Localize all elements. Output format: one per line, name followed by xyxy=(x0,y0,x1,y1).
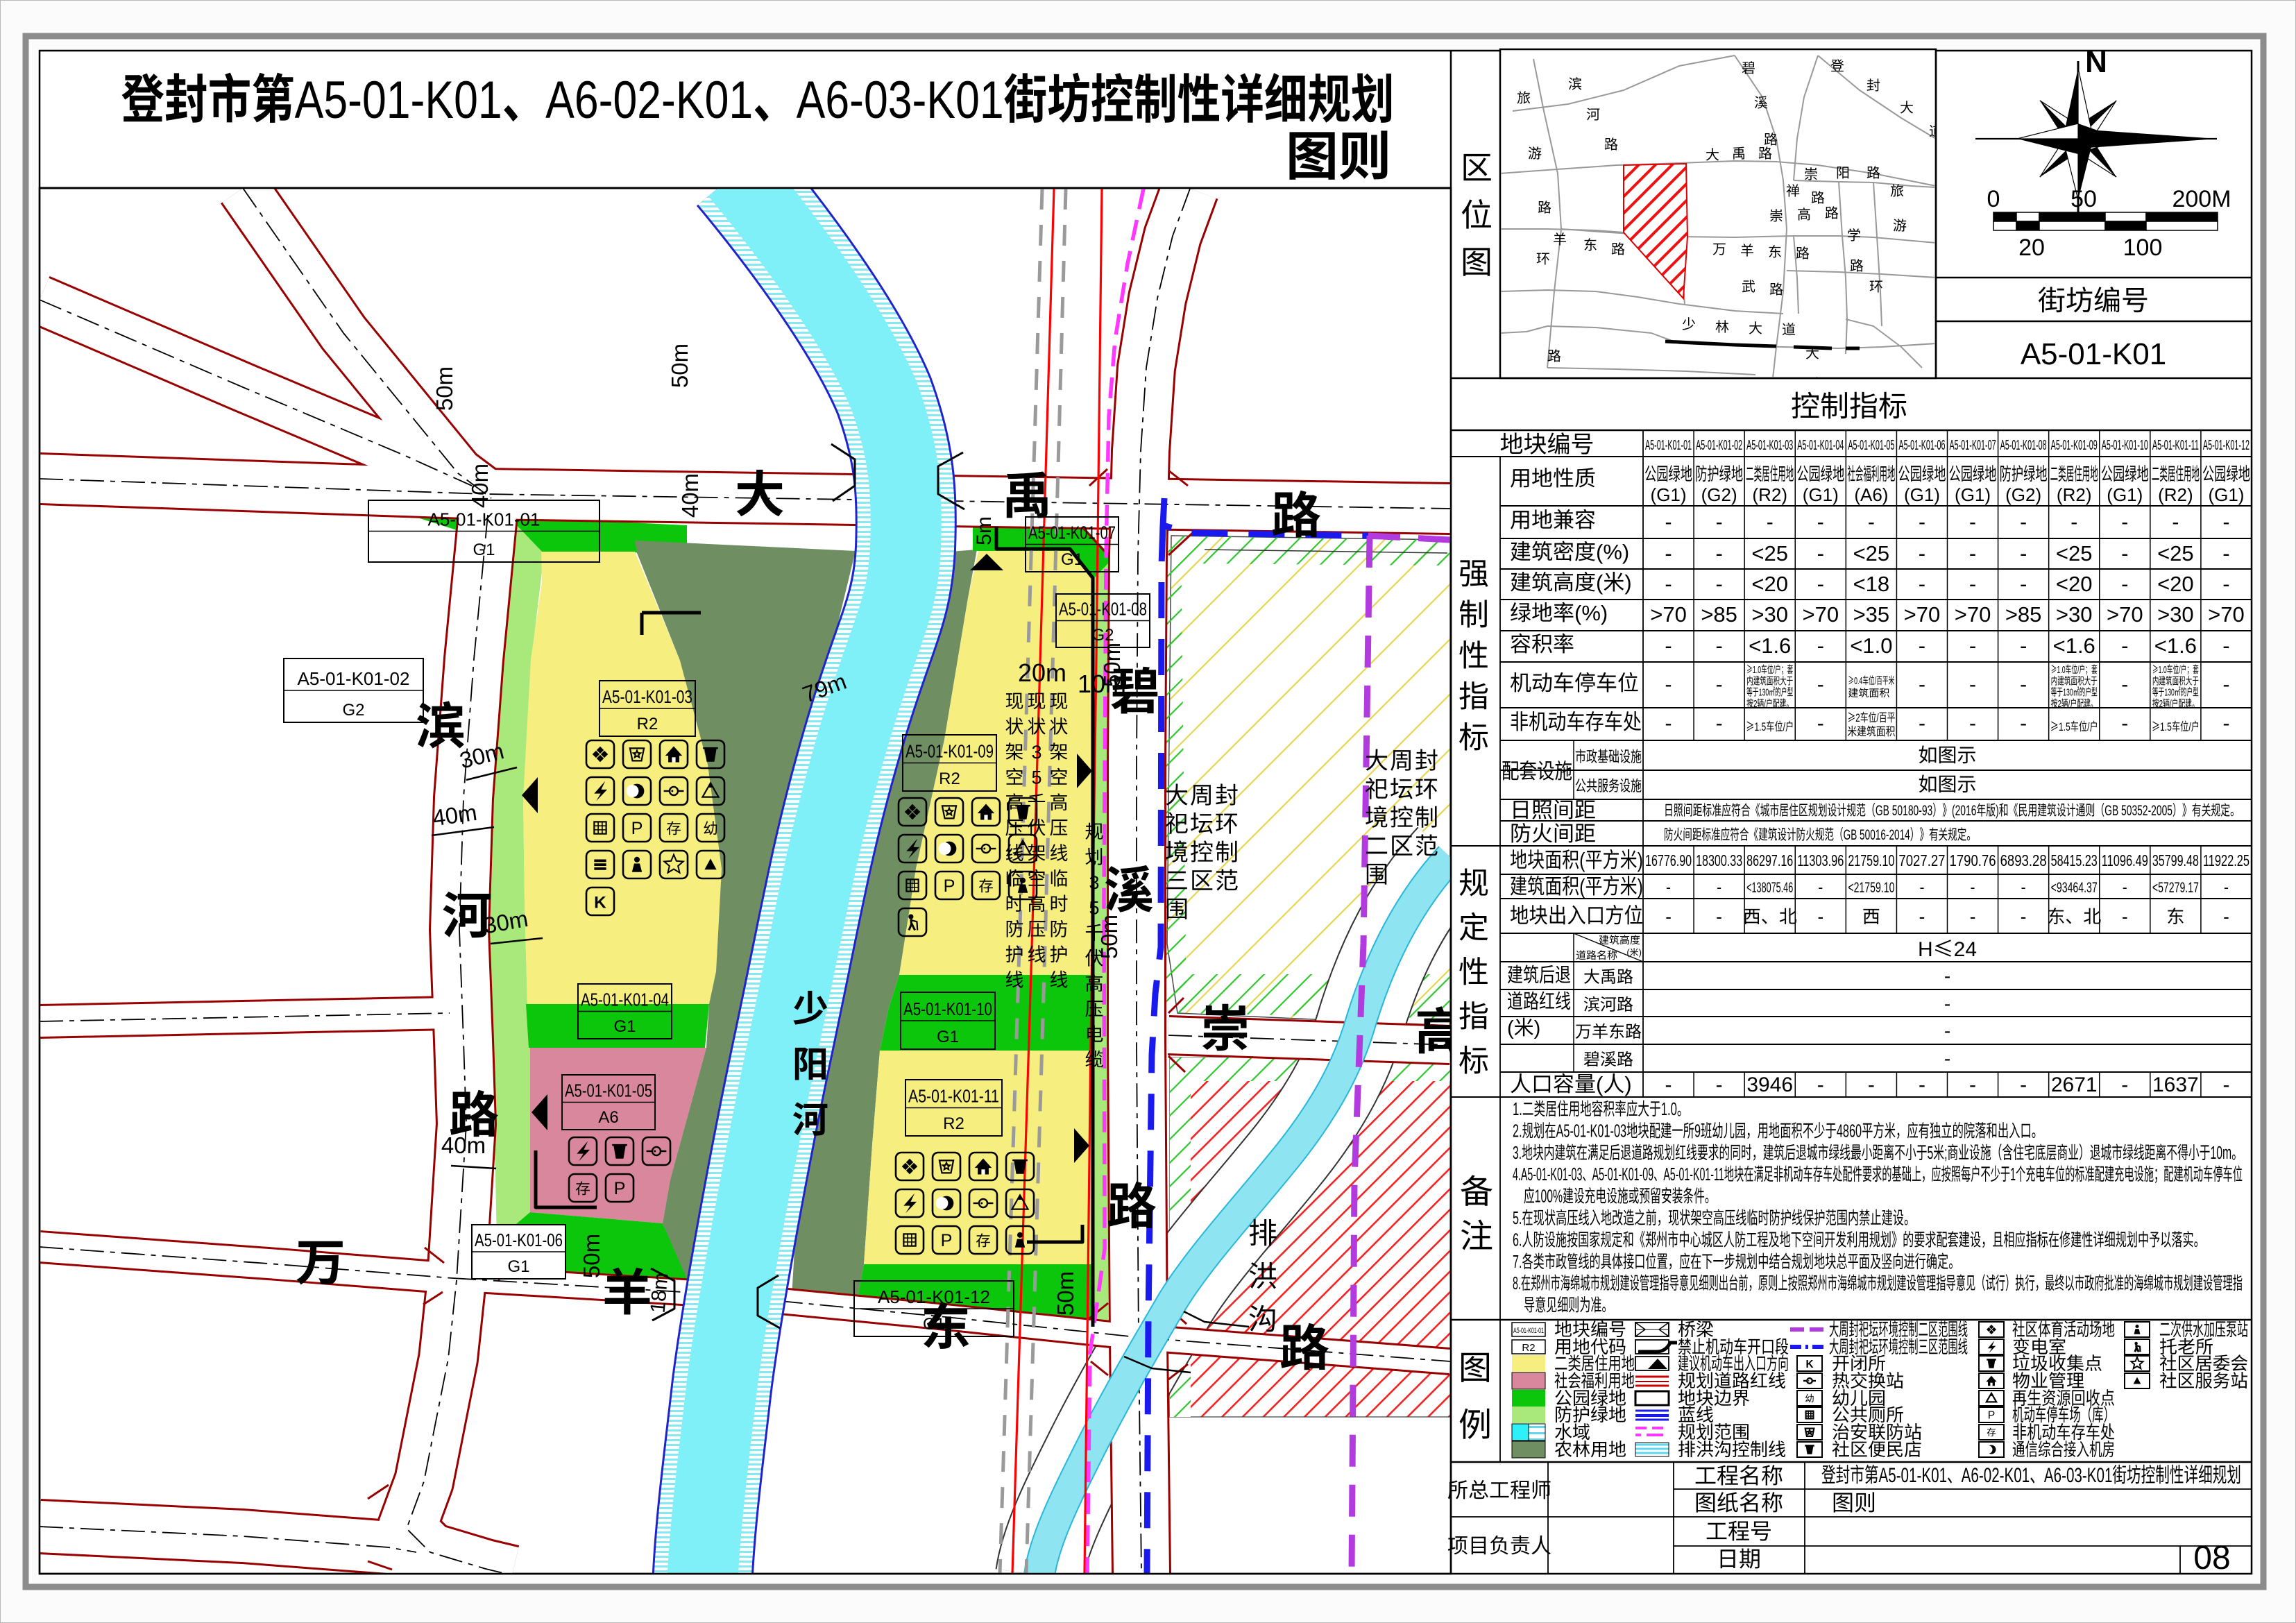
svg-text:-: - xyxy=(2020,634,2027,658)
svg-text:路: 路 xyxy=(1604,133,1618,153)
svg-text:防护绿地: 防护绿地 xyxy=(1695,460,1743,486)
svg-text:-: - xyxy=(2222,572,2229,596)
svg-text:路: 路 xyxy=(1279,1307,1329,1380)
svg-text:阳: 阳 xyxy=(792,1035,828,1087)
svg-text:A5-01-K01-09: A5-01-K01-09 xyxy=(905,741,994,762)
svg-text:A5-01-K01: A5-01-K01 xyxy=(2021,337,2166,371)
svg-text:-: - xyxy=(2070,511,2077,534)
svg-text:线: 线 xyxy=(1050,838,1069,865)
svg-text:A5-01-K01-04: A5-01-K01-04 xyxy=(581,989,669,1010)
svg-text:A5-01-K01-04: A5-01-K01-04 xyxy=(1797,437,1844,453)
svg-text:羊: 羊 xyxy=(602,1252,652,1325)
svg-text:<25: <25 xyxy=(2157,541,2194,566)
svg-text:50m: 50m xyxy=(1053,1271,1078,1316)
svg-text:万羊东路: 万羊东路 xyxy=(1575,1018,1642,1042)
svg-text:-: - xyxy=(2222,541,2229,566)
svg-text:临: 临 xyxy=(1005,864,1024,891)
svg-text:伏: 伏 xyxy=(1028,813,1046,840)
svg-text:G1: G1 xyxy=(473,541,495,559)
svg-text:-: - xyxy=(1817,572,1824,596)
svg-text:>85: >85 xyxy=(1701,602,1737,627)
svg-text:-: - xyxy=(2121,572,2128,596)
svg-text:50m: 50m xyxy=(579,1234,604,1278)
svg-text:-: - xyxy=(1665,1073,1672,1096)
svg-text:时: 时 xyxy=(1050,889,1069,916)
svg-text:-: - xyxy=(2121,673,2128,696)
svg-text:<1.6: <1.6 xyxy=(2053,634,2095,658)
svg-text:社区服务站: 社区服务站 xyxy=(2159,1367,2248,1393)
svg-text:G2: G2 xyxy=(342,701,364,720)
svg-text:存: 存 xyxy=(575,1177,590,1198)
svg-text:P: P xyxy=(1988,1410,1996,1422)
svg-text:现: 现 xyxy=(1028,686,1046,713)
svg-text:高: 高 xyxy=(1005,788,1024,815)
svg-text:21759.10: 21759.10 xyxy=(1848,851,1894,869)
svg-text:压: 压 xyxy=(1005,813,1024,840)
svg-text:50m: 50m xyxy=(667,343,692,388)
svg-text:碧: 碧 xyxy=(1110,651,1160,724)
svg-text:禹: 禹 xyxy=(1732,142,1746,162)
svg-text:存: 存 xyxy=(666,817,681,838)
svg-text:11922.25: 11922.25 xyxy=(2203,851,2250,869)
svg-text:控制指标: 控制指标 xyxy=(1791,383,1907,425)
svg-text:定: 定 xyxy=(1459,903,1489,947)
svg-text:地块编号: 地块编号 xyxy=(1500,425,1595,459)
svg-text:架: 架 xyxy=(1028,838,1046,865)
svg-text:线: 线 xyxy=(1050,965,1069,992)
svg-text:东: 东 xyxy=(1583,234,1597,254)
svg-text:大: 大 xyxy=(1805,342,1819,362)
svg-text:-: - xyxy=(1944,993,1950,1014)
svg-text:-: - xyxy=(1666,880,1671,896)
svg-text:-: - xyxy=(1969,1073,1976,1096)
svg-text:-: - xyxy=(1971,880,1975,896)
svg-text:路: 路 xyxy=(1825,202,1839,222)
svg-text:如图示: 如图示 xyxy=(1918,740,1976,768)
svg-text:-: - xyxy=(1716,673,1723,696)
svg-text:20m: 20m xyxy=(1018,658,1066,687)
svg-text:电: 电 xyxy=(1085,1019,1104,1046)
svg-text:(G1): (G1) xyxy=(1803,484,1839,505)
svg-text:R2: R2 xyxy=(943,1114,964,1133)
svg-text:5m: 5m xyxy=(973,516,996,545)
svg-text:登: 登 xyxy=(1830,55,1844,75)
svg-text:-: - xyxy=(2222,1073,2229,1096)
svg-text:A6: A6 xyxy=(598,1108,618,1127)
svg-text:状: 状 xyxy=(1005,712,1024,739)
svg-text:路: 路 xyxy=(1107,1166,1157,1239)
svg-text:架: 架 xyxy=(1050,737,1069,764)
svg-text:护: 护 xyxy=(1050,940,1069,967)
svg-text:-: - xyxy=(2121,634,2128,658)
svg-text:西、北: 西、北 xyxy=(1743,903,1797,928)
svg-text:-: - xyxy=(2020,572,2027,596)
svg-text:二类居住用地: 二类居住用地 xyxy=(2152,460,2200,486)
svg-text:时: 时 xyxy=(1005,889,1024,916)
svg-text:架: 架 xyxy=(1005,737,1024,764)
svg-text:用地兼容: 用地兼容 xyxy=(1510,502,1596,534)
svg-text:-: - xyxy=(2172,511,2179,534)
svg-text:R2: R2 xyxy=(1522,1342,1535,1354)
svg-text:40m: 40m xyxy=(677,473,703,518)
svg-text:围: 围 xyxy=(1365,856,1390,890)
svg-text:图: 图 xyxy=(1459,1341,1492,1389)
svg-text:>70: >70 xyxy=(2107,602,2143,627)
svg-text:>85: >85 xyxy=(2005,602,2042,627)
svg-text:-: - xyxy=(2020,541,2027,566)
svg-text:P: P xyxy=(944,876,955,896)
svg-text:建筑后退: 建筑后退 xyxy=(1507,959,1571,988)
svg-text:A5-01-K01-01: A5-01-K01-01 xyxy=(1645,437,1692,453)
svg-text:P: P xyxy=(941,1231,953,1250)
svg-text:-: - xyxy=(1716,712,1723,735)
svg-text:例: 例 xyxy=(1459,1397,1492,1446)
svg-text:线: 线 xyxy=(1005,838,1024,865)
svg-text:A5-01-K01-07: A5-01-K01-07 xyxy=(1950,437,1996,453)
svg-text:>35: >35 xyxy=(1853,602,1890,627)
svg-text:G1: G1 xyxy=(507,1257,529,1276)
svg-text:50: 50 xyxy=(2070,186,2097,212)
svg-text:路: 路 xyxy=(1758,142,1772,162)
svg-text:>70: >70 xyxy=(1802,602,1839,627)
svg-text:A5-01-K01-03: A5-01-K01-03 xyxy=(1746,437,1793,453)
svg-text:大: 大 xyxy=(1900,96,1914,117)
svg-text:-: - xyxy=(1969,541,1976,566)
svg-text:<1.0: <1.0 xyxy=(1850,634,1892,658)
svg-text:<57279.17: <57279.17 xyxy=(2152,880,2199,896)
svg-text:35799.48: 35799.48 xyxy=(2152,851,2199,869)
svg-text:西: 西 xyxy=(1862,903,1880,928)
svg-text:-: - xyxy=(2222,673,2229,696)
svg-text:建筑面积(平方米): 建筑面积(平方米) xyxy=(1510,869,1643,900)
svg-text:容积率: 容积率 xyxy=(1510,627,1574,658)
svg-text:40m: 40m xyxy=(467,464,493,508)
svg-text:路: 路 xyxy=(1811,187,1825,207)
svg-text:道路红线: 道路红线 xyxy=(1507,985,1571,1014)
svg-text:-: - xyxy=(1969,634,1976,658)
svg-text:A5-01-K01-09: A5-01-K01-09 xyxy=(2051,437,2098,453)
svg-text:(A6): (A6) xyxy=(1854,484,1888,505)
svg-text:2671: 2671 xyxy=(2051,1073,2098,1096)
svg-text:<1.6: <1.6 xyxy=(1749,634,1791,658)
svg-text:崇: 崇 xyxy=(1200,988,1250,1061)
svg-text:(G1): (G1) xyxy=(1955,484,1991,505)
svg-text:-: - xyxy=(1919,572,1925,596)
svg-text:-: - xyxy=(1665,712,1672,735)
svg-text:防火间距标准应符合《建筑设计防火规范（GB 50016-20: 防火间距标准应符合《建筑设计防火规范（GB 50016-2014）》有关规定。 xyxy=(1664,824,1976,844)
svg-text:50m: 50m xyxy=(432,366,457,411)
svg-text:学: 学 xyxy=(1847,224,1861,244)
svg-text:路: 路 xyxy=(1538,196,1551,216)
svg-text:二类居住用地: 二类居住用地 xyxy=(1746,460,1794,486)
svg-text:空: 空 xyxy=(1050,763,1069,790)
svg-text:G1: G1 xyxy=(1061,550,1083,569)
svg-text:公园绿地: 公园绿地 xyxy=(2101,460,2149,486)
svg-text:-: - xyxy=(2222,634,2229,658)
svg-text:规: 规 xyxy=(1459,858,1489,903)
svg-text:万: 万 xyxy=(296,1222,346,1295)
svg-text:-: - xyxy=(1817,1073,1824,1096)
svg-text:洪: 洪 xyxy=(1248,1253,1277,1295)
svg-text:-: - xyxy=(2123,880,2127,896)
svg-text:位: 位 xyxy=(1461,190,1493,236)
svg-text:-: - xyxy=(1868,1073,1875,1096)
svg-text:A5-01-K01-11: A5-01-K01-11 xyxy=(2152,437,2199,453)
svg-text:区: 区 xyxy=(1461,143,1493,189)
svg-text:>70: >70 xyxy=(1904,602,1941,627)
svg-text:少: 少 xyxy=(792,980,828,1032)
svg-text:(米): (米) xyxy=(1507,1012,1540,1041)
svg-text:≥1.5车位/户: ≥1.5车位/户 xyxy=(2152,717,2200,734)
svg-text:-: - xyxy=(1817,673,1824,696)
svg-text:08: 08 xyxy=(2193,1540,2230,1577)
svg-text:用地性质: 用地性质 xyxy=(1510,461,1596,492)
svg-text:指: 指 xyxy=(1459,992,1489,1036)
svg-text:A5-01-K01-05: A5-01-K01-05 xyxy=(565,1080,652,1101)
svg-text:-: - xyxy=(1944,1048,1950,1069)
svg-text:A5-01-K01-03: A5-01-K01-03 xyxy=(602,686,692,707)
svg-text:路: 路 xyxy=(1769,278,1783,298)
svg-text:幼: 幼 xyxy=(703,817,718,838)
svg-text:-: - xyxy=(2222,511,2229,534)
svg-text:<1.6: <1.6 xyxy=(2154,634,2197,658)
svg-text:道: 道 xyxy=(1782,318,1796,339)
svg-text:A5-01-K01-06: A5-01-K01-06 xyxy=(1898,437,1945,453)
svg-text:K: K xyxy=(1805,1359,1813,1370)
svg-text:-: - xyxy=(1970,906,1976,927)
svg-text:-: - xyxy=(1919,906,1925,927)
svg-text:大: 大 xyxy=(735,454,785,527)
svg-text:强: 强 xyxy=(1459,549,1489,593)
svg-text:溪: 溪 xyxy=(1754,92,1768,112)
svg-text:公园绿地: 公园绿地 xyxy=(1898,460,1946,486)
svg-text:5: 5 xyxy=(1089,893,1099,920)
svg-text:现: 现 xyxy=(1050,686,1069,713)
svg-text:-: - xyxy=(2223,906,2229,927)
svg-text:-: - xyxy=(1715,634,1722,658)
svg-text:5: 5 xyxy=(1031,763,1041,790)
svg-text:绿地率(%): 绿地率(%) xyxy=(1510,595,1608,627)
svg-text:-: - xyxy=(1919,880,1924,896)
svg-text:禹: 禹 xyxy=(1002,455,1052,528)
svg-text:大: 大 xyxy=(1749,317,1762,337)
svg-text:G2: G2 xyxy=(1091,626,1114,645)
svg-text:-: - xyxy=(1919,712,1925,735)
svg-text:路: 路 xyxy=(1866,162,1880,182)
svg-text:制: 制 xyxy=(1459,590,1489,634)
svg-text:-: - xyxy=(2121,541,2128,566)
svg-text:建筑高度(米): 建筑高度(米) xyxy=(1510,565,1632,596)
svg-text:少: 少 xyxy=(1682,313,1696,333)
svg-text:N: N xyxy=(2085,45,2107,79)
svg-text:-: - xyxy=(2222,712,2229,735)
svg-text:-: - xyxy=(2020,712,2027,735)
svg-text:<20: <20 xyxy=(2056,572,2093,596)
svg-text:游: 游 xyxy=(1528,142,1542,162)
svg-text:(米): (米) xyxy=(1626,945,1642,958)
svg-text:-: - xyxy=(2122,906,2128,927)
svg-text:武: 武 xyxy=(1742,275,1755,296)
svg-text:A5-01-K01-01: A5-01-K01-01 xyxy=(428,509,541,530)
svg-text:路: 路 xyxy=(449,1074,499,1147)
svg-text:-: - xyxy=(1716,906,1722,927)
svg-text:<21759.10: <21759.10 xyxy=(1848,880,1894,896)
svg-text:A5-01-K01-11: A5-01-K01-11 xyxy=(908,1086,999,1107)
svg-text:≥1.5车位/户: ≥1.5车位/户 xyxy=(1746,717,1794,734)
svg-text:(R2): (R2) xyxy=(2057,484,2092,505)
svg-text:路: 路 xyxy=(1796,242,1810,262)
svg-text:1790.76: 1790.76 xyxy=(1950,851,1996,869)
svg-text:导意见细则为准。: 导意见细则为准。 xyxy=(1524,1291,1613,1317)
svg-text:1637: 1637 xyxy=(2152,1073,2199,1096)
svg-text:>30: >30 xyxy=(1751,602,1788,627)
svg-text:旅: 旅 xyxy=(1890,180,1904,200)
svg-text:千: 千 xyxy=(1028,788,1046,815)
svg-text:20: 20 xyxy=(2018,235,2045,261)
svg-text:农林用地: 农林用地 xyxy=(1554,1436,1626,1461)
svg-text:备: 备 xyxy=(1460,1164,1493,1213)
svg-text:滨: 滨 xyxy=(1568,73,1582,93)
svg-text:滨河路: 滨河路 xyxy=(1583,991,1633,1015)
svg-text:公园绿地: 公园绿地 xyxy=(1644,460,1692,486)
svg-text:标: 标 xyxy=(1459,1036,1489,1080)
svg-text:16776.90: 16776.90 xyxy=(1645,851,1692,869)
svg-text:<25: <25 xyxy=(2056,541,2093,566)
svg-text:-: - xyxy=(2020,673,2027,696)
svg-text:>70: >70 xyxy=(2208,602,2245,627)
svg-text:高: 高 xyxy=(1797,203,1811,223)
svg-text:配套设施: 配套设施 xyxy=(1502,754,1572,785)
svg-text:社会福利用地: 社会福利用地 xyxy=(1847,460,1895,486)
svg-text:-: - xyxy=(1717,880,1721,896)
svg-text:阳: 阳 xyxy=(1836,162,1850,182)
svg-text:-: - xyxy=(1868,511,1875,534)
svg-text:-: - xyxy=(1818,880,1823,896)
svg-text:(G1): (G1) xyxy=(2107,484,2143,505)
svg-text:防: 防 xyxy=(1050,915,1069,942)
svg-text:11096.49: 11096.49 xyxy=(2102,851,2148,869)
svg-text:市政基础设施: 市政基础设施 xyxy=(1575,745,1642,767)
svg-text:-: - xyxy=(1665,572,1672,596)
svg-text:压: 压 xyxy=(1028,915,1046,942)
svg-text:性: 性 xyxy=(1459,947,1489,992)
svg-text:状: 状 xyxy=(1050,712,1069,739)
svg-text:状: 状 xyxy=(1028,712,1046,739)
svg-text:街坊编号: 街坊编号 xyxy=(2038,278,2149,318)
svg-text:6893.28: 6893.28 xyxy=(2000,851,2047,869)
svg-text:<20: <20 xyxy=(1751,572,1788,596)
svg-text:建筑面积: 建筑面积 xyxy=(1848,686,1889,700)
svg-text:公园绿地: 公园绿地 xyxy=(2202,460,2250,486)
svg-text:-: - xyxy=(1665,634,1672,658)
svg-text:-: - xyxy=(1716,1073,1723,1096)
svg-text:东、北: 东、北 xyxy=(2047,903,2101,928)
svg-text:8.在郑州市海绵城市规划建设管理指导意见细则出台前，原则上按: 8.在郑州市海绵城市规划建设管理指导意见细则出台前，原则上按照郑州市海绵城市规划… xyxy=(1513,1269,2243,1295)
svg-text:>70: >70 xyxy=(1650,602,1687,627)
svg-text:-: - xyxy=(1817,511,1824,534)
svg-text:存: 存 xyxy=(1987,1425,1996,1438)
svg-text:-: - xyxy=(1969,511,1976,534)
svg-text:(G1): (G1) xyxy=(1904,484,1940,505)
svg-text:存: 存 xyxy=(978,874,994,896)
svg-text:日期: 日期 xyxy=(1717,1542,1761,1574)
svg-text:封: 封 xyxy=(1866,74,1880,94)
svg-text:沟: 沟 xyxy=(1248,1296,1277,1339)
svg-text:伏: 伏 xyxy=(1085,944,1104,971)
svg-text:羊: 羊 xyxy=(1553,228,1567,248)
svg-text:高: 高 xyxy=(1085,969,1104,996)
svg-text:东: 东 xyxy=(921,1286,971,1359)
svg-text:3: 3 xyxy=(1089,867,1099,894)
svg-text:排: 排 xyxy=(1248,1210,1277,1252)
svg-text:-: - xyxy=(2121,1073,2128,1096)
svg-text:东: 东 xyxy=(2166,903,2184,928)
svg-text:>30: >30 xyxy=(2056,602,2093,627)
svg-text:非机动车存车处: 非机动车存车处 xyxy=(1510,704,1642,736)
svg-text:-: - xyxy=(1716,511,1723,534)
svg-text:压: 压 xyxy=(1050,813,1069,840)
svg-text:(G2): (G2) xyxy=(1701,484,1737,505)
svg-text:3: 3 xyxy=(1031,737,1041,764)
svg-text:路: 路 xyxy=(1271,475,1321,547)
svg-text:路: 路 xyxy=(1547,345,1561,365)
svg-text:-: - xyxy=(2020,511,2027,534)
svg-text:A5-01-K01-12: A5-01-K01-12 xyxy=(2203,437,2250,453)
svg-text:-: - xyxy=(1944,1020,1950,1042)
svg-text:崇: 崇 xyxy=(1769,205,1783,225)
svg-text:-: - xyxy=(2121,511,2128,534)
svg-text:图: 图 xyxy=(1461,237,1493,283)
svg-text:>30: >30 xyxy=(2157,602,2194,627)
svg-text:(G2): (G2) xyxy=(2005,484,2041,505)
svg-text:游: 游 xyxy=(1893,214,1907,235)
svg-text:防: 防 xyxy=(1005,915,1024,942)
svg-text:-: - xyxy=(2224,880,2229,896)
svg-text:<20: <20 xyxy=(2157,572,2194,596)
svg-text:河: 河 xyxy=(442,875,492,948)
svg-text:空: 空 xyxy=(1005,763,1024,790)
svg-text:性: 性 xyxy=(1459,631,1489,675)
svg-text:临: 临 xyxy=(1050,864,1069,891)
svg-text:-: - xyxy=(1665,673,1672,696)
svg-text:按2辆/户配建。: 按2辆/户配建。 xyxy=(2051,696,2098,711)
svg-text:道路名称: 道路名称 xyxy=(1576,948,1617,962)
svg-text:A5-01-K01-02: A5-01-K01-02 xyxy=(1696,437,1742,453)
svg-text:缆: 缆 xyxy=(1085,1045,1104,1072)
svg-text:58415.23: 58415.23 xyxy=(2051,851,2098,869)
svg-text:<18: <18 xyxy=(1853,572,1890,596)
svg-text:存: 存 xyxy=(976,1229,991,1250)
svg-text:按2辆/户配建。: 按2辆/户配建。 xyxy=(2152,696,2199,711)
svg-text:R2: R2 xyxy=(939,770,960,788)
svg-text:A5-01-K01-05: A5-01-K01-05 xyxy=(1848,437,1894,453)
svg-text:A5-01-K01-10: A5-01-K01-10 xyxy=(903,999,992,1019)
svg-text:K: K xyxy=(594,893,606,912)
svg-text:≥1.5车位/户: ≥1.5车位/户 xyxy=(2050,717,2098,734)
svg-text:线: 线 xyxy=(1005,965,1024,992)
svg-text:-: - xyxy=(1665,541,1672,566)
svg-text:如图示: 如图示 xyxy=(1918,770,1976,797)
svg-text:(R2): (R2) xyxy=(2158,484,2193,505)
svg-text:现: 现 xyxy=(1005,686,1024,713)
svg-text:压: 压 xyxy=(1085,994,1104,1021)
svg-text:A5-01-K01-02: A5-01-K01-02 xyxy=(298,668,410,689)
svg-text:A5-01-K01-06: A5-01-K01-06 xyxy=(475,1230,563,1250)
svg-text:R2: R2 xyxy=(637,715,658,733)
svg-text:划: 划 xyxy=(1085,842,1104,869)
svg-text:指: 指 xyxy=(1459,672,1489,716)
svg-text:旅: 旅 xyxy=(1517,87,1531,107)
